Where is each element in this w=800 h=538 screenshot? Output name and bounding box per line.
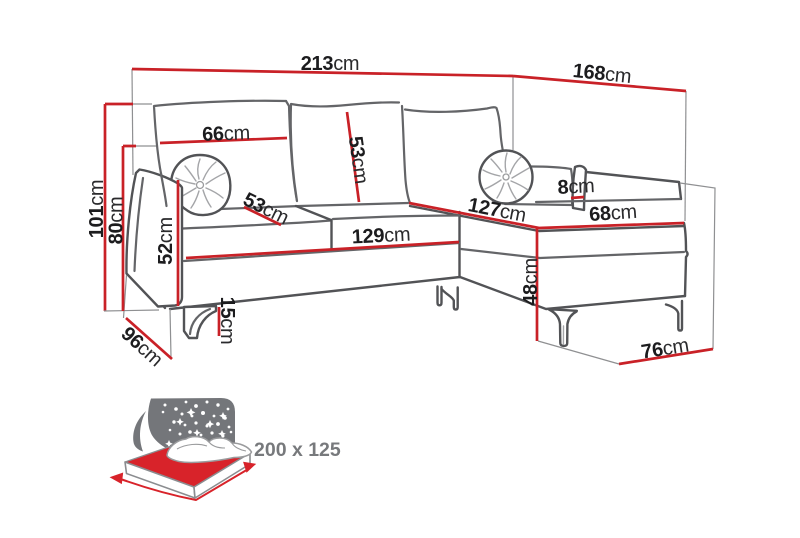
svg-text:200 x 125: 200 x 125 bbox=[254, 439, 341, 461]
svg-text:48cm: 48cm bbox=[520, 258, 542, 306]
svg-text:15cm: 15cm bbox=[216, 297, 238, 345]
svg-text:129cm: 129cm bbox=[351, 223, 411, 248]
svg-text:213cm: 213cm bbox=[301, 53, 360, 75]
svg-text:80cm: 80cm bbox=[106, 197, 128, 245]
svg-text:52cm: 52cm bbox=[155, 217, 177, 265]
svg-text:8cm: 8cm bbox=[557, 175, 595, 199]
svg-text:66cm: 66cm bbox=[202, 122, 250, 146]
svg-text:68cm: 68cm bbox=[588, 201, 637, 226]
